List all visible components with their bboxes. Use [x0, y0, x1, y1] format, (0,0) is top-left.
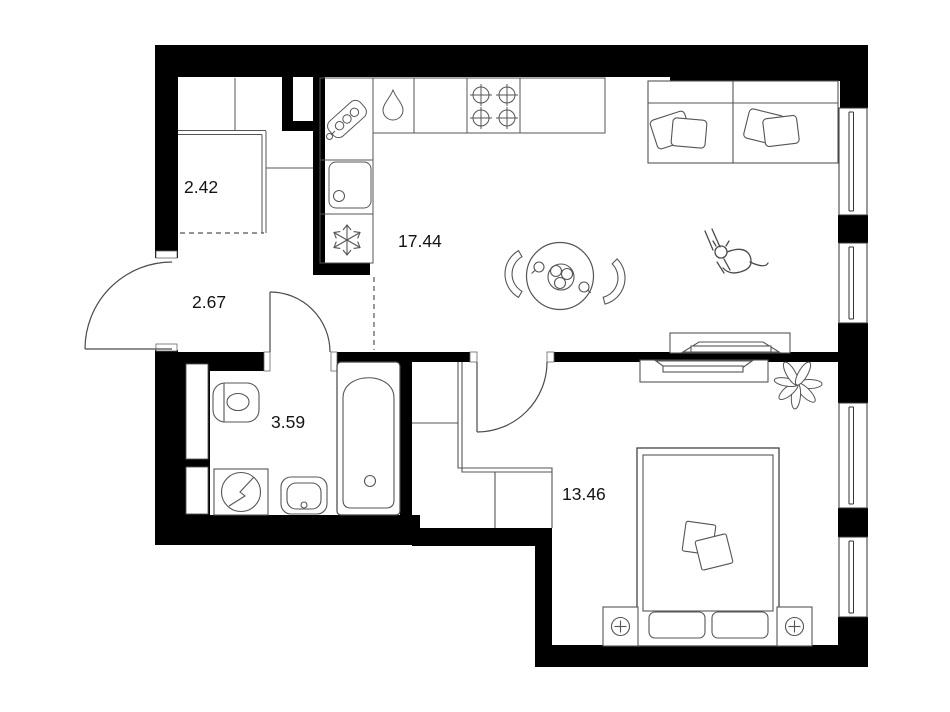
room-label-bedroom: 13.46: [562, 484, 606, 504]
sofa: [648, 81, 838, 163]
tv-stand-bedroom: [640, 360, 768, 382]
duct-shaft: [186, 467, 208, 514]
jamb: [331, 352, 337, 371]
wall-pier-right-1: [838, 215, 868, 243]
wall-kitchen: [313, 77, 325, 275]
wall-hall-bath-left: [155, 352, 270, 371]
kitchen-counter: [373, 78, 605, 133]
wall-corner-top-right: [840, 45, 868, 108]
bed: [637, 448, 779, 646]
room-label-bathroom: 3.59: [271, 412, 305, 432]
wall-step-vertical: [535, 528, 552, 667]
chair-icon: [602, 258, 631, 308]
wall-pier-right-3: [838, 508, 868, 537]
bedroom-door: [477, 362, 547, 432]
doors: [85, 262, 547, 432]
jamb: [156, 344, 177, 351]
nightstand-left: [603, 607, 638, 646]
washing-machine-icon: [214, 469, 268, 515]
kitchen-sink-icon: [329, 162, 371, 208]
wall-pier-right-2: [838, 323, 868, 403]
window-1: [839, 108, 867, 215]
wall-bathroom-right: [400, 352, 412, 527]
freezer-snowflake-icon: [332, 225, 362, 255]
kitchen: [320, 78, 605, 263]
plant-icon: [774, 360, 822, 409]
room-label-kitchen-living: 17.44: [398, 231, 442, 251]
door-swing-arc: [270, 292, 330, 352]
floor-plan-drawing: 2.42 2.67 17.44 3.59 13.46: [0, 0, 950, 712]
water-drop-icon: [383, 90, 403, 120]
wardrobe-outline: [412, 362, 552, 528]
toilet-icon: [213, 383, 259, 422]
wall-nook-bottom: [412, 528, 552, 546]
bathroom-door: [270, 292, 330, 352]
chair-icon: [505, 251, 522, 298]
duct-shafts: [186, 364, 208, 514]
door-swing-arc: [85, 262, 172, 349]
wall-bottom-bedroom: [535, 645, 868, 667]
room-label-hallway: 2.67: [192, 292, 226, 312]
cat-icon: [705, 229, 768, 273]
nightstand-lamp-icon: [612, 618, 630, 636]
electric-panel-icon: [325, 98, 370, 141]
nightstand-lamp-icon: [786, 618, 804, 636]
tv-stand-living: [670, 333, 790, 353]
wall-left-lower: [155, 350, 178, 545]
door-swing-arc: [477, 362, 547, 432]
wall-divider-a: [412, 352, 470, 362]
living-room: [505, 81, 838, 353]
bathroom: [213, 362, 400, 515]
dining-table: [527, 243, 594, 310]
wall-kitchen-stub: [313, 263, 370, 275]
room-label-storage: 2.42: [184, 177, 218, 197]
bedroom: [412, 360, 822, 646]
jamb: [470, 352, 477, 362]
duct-shaft: [186, 364, 208, 459]
dining-set: [505, 243, 630, 310]
nightstand-right: [777, 607, 812, 646]
window-4: [839, 537, 867, 617]
jamb: [156, 251, 177, 258]
entrance-door: [85, 262, 172, 349]
window-2: [839, 243, 867, 323]
stove-burners-icon: [470, 84, 518, 129]
window-3: [839, 403, 867, 508]
wall-top-step: [670, 45, 868, 81]
floor-plan: 2.42 2.67 17.44 3.59 13.46: [0, 0, 950, 712]
jamb: [264, 352, 270, 371]
jamb: [547, 352, 554, 362]
wall-left-upper: [155, 45, 178, 258]
wall-shaft-bottom: [282, 121, 325, 131]
bathtub-icon: [337, 362, 400, 515]
bathroom-sink-icon: [281, 477, 327, 514]
